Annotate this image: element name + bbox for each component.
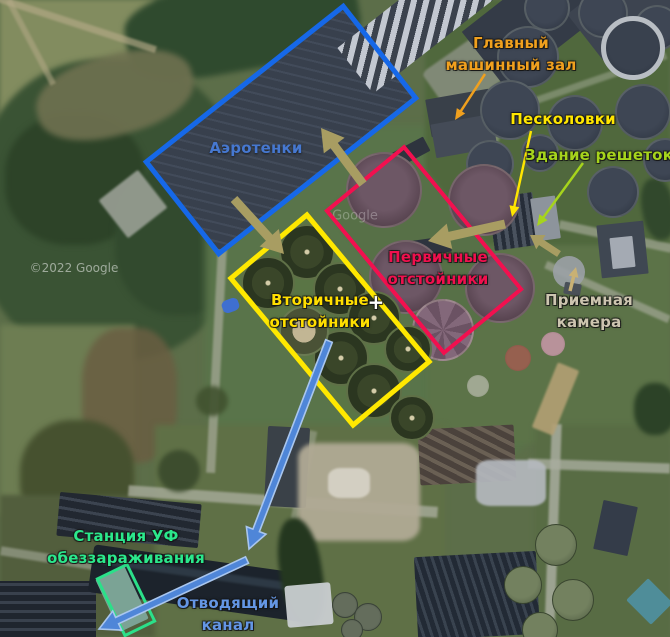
tank-gray — [467, 375, 489, 397]
label-line: камера — [545, 311, 633, 333]
label-line: Приемная — [545, 289, 633, 311]
satellite-map: Главныймашинный залПесколовкиЗдание реше… — [0, 0, 670, 637]
label-line: Станция УФ — [47, 525, 205, 547]
trees-mid-2 — [196, 386, 228, 416]
label-line: Аэротенки — [209, 137, 302, 159]
label-line: Здание решеток — [525, 144, 670, 166]
tank-pink — [541, 332, 565, 356]
label-peskolovki: Песколовки — [510, 108, 616, 130]
label-line: + — [368, 291, 385, 313]
label-line: Отводящий — [177, 592, 279, 614]
tank-canal-end — [341, 619, 363, 637]
tank-bottomright — [535, 524, 577, 566]
label-priemnaya-kamera: Приемнаякамера — [545, 289, 633, 333]
label-aerotenki: Аэротенки — [209, 137, 302, 159]
tank-bottomright — [504, 566, 542, 604]
building-right-light — [609, 236, 635, 269]
sludge-beds — [0, 581, 96, 637]
label-line: Вторичные — [270, 289, 371, 311]
tank-digester — [587, 166, 639, 218]
label-line: обеззараживания — [47, 547, 205, 569]
label-vtorichnye-otstoyniki: Вторичныеотстойники — [270, 289, 371, 333]
label-line: канал — [177, 614, 279, 636]
label-otvodyashchiy-kanal: Отводящийканал — [177, 592, 279, 636]
label-line: Песколовки — [510, 108, 616, 130]
building-canal-end — [284, 582, 333, 628]
construction-white — [328, 468, 370, 498]
label-glavny-mashinny-zal: Главныймашинный зал — [445, 32, 576, 76]
label-plus-marker: + — [368, 291, 385, 313]
label-line: Первичные — [388, 246, 489, 268]
trees-right-1 — [634, 383, 670, 435]
label-uv-station: Станция УФобеззараживания — [47, 525, 205, 569]
trees-mid-1 — [158, 450, 200, 492]
label-zdanie-reshetok: Здание решеток — [525, 144, 670, 166]
tank-digester — [615, 84, 670, 140]
label-line: отстойники — [270, 311, 371, 333]
tank-digester-ring — [601, 16, 665, 80]
label-line: машинный зал — [445, 54, 576, 76]
copyright-watermark: ©2022 Google — [30, 261, 119, 275]
tank-bottomright — [552, 579, 594, 621]
label-line: отстойники — [388, 268, 489, 290]
tank-secondary — [389, 395, 435, 441]
label-pervichnye-otstoyniki: Первичныеотстойники — [388, 246, 489, 290]
tank-rust — [505, 345, 531, 371]
label-line: Главный — [445, 32, 576, 54]
structure-light-cluster — [476, 460, 546, 506]
